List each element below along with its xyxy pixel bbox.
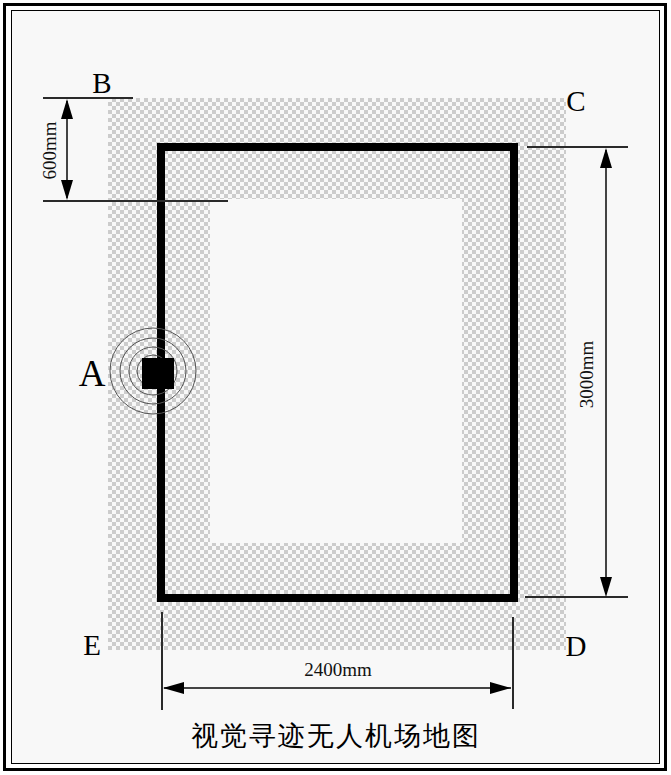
point-label-b: B	[87, 69, 117, 98]
point-label-d: D	[561, 632, 591, 661]
extension-line-600-top	[43, 97, 133, 99]
dimension-line-3000	[605, 150, 607, 594]
dimension-label-600mm: 600mm	[40, 116, 59, 186]
track-line-rectangle	[157, 143, 518, 602]
extension-line-2400-right	[512, 617, 514, 709]
dimension-label-2400mm: 2400mm	[298, 660, 378, 679]
dimension-line-2400	[164, 687, 511, 689]
extension-line-600-bottom	[43, 200, 228, 202]
point-label-c: C	[561, 87, 591, 116]
point-label-e: E	[77, 631, 107, 660]
extension-line-3000-bottom	[525, 596, 628, 598]
extension-line-2400-left	[161, 612, 163, 710]
arrowhead-down-icon	[600, 577, 612, 597]
drone-field-map-diagram: A B C D E 600mm 3000mm 2400mm 视觉寻迹无人机场地图	[0, 0, 671, 775]
arrowhead-up-icon	[600, 148, 612, 168]
arrowhead-left-icon	[163, 682, 184, 694]
point-label-a: A	[77, 355, 107, 392]
start-point-square-marker	[142, 358, 174, 389]
diagram-title: 视觉寻迹无人机场地图	[136, 722, 536, 752]
arrowhead-down-icon	[61, 180, 73, 200]
extension-line-3000-top	[527, 146, 628, 148]
arrowhead-up-icon	[61, 99, 73, 119]
dimension-label-3000mm: 3000mm	[577, 340, 596, 410]
arrowhead-right-icon	[490, 682, 511, 694]
